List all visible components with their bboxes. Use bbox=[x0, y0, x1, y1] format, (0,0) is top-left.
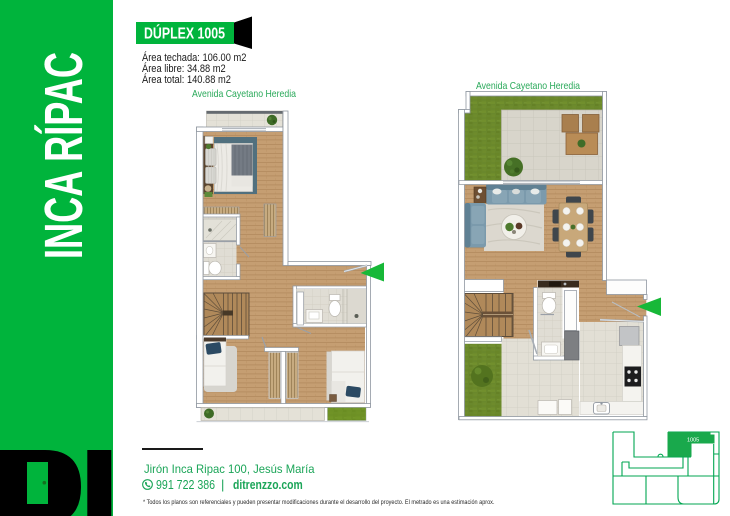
svg-text:DÚPLEX 1005: DÚPLEX 1005 bbox=[144, 24, 225, 43]
svg-text:INCA RÍPAC: INCA RÍPAC bbox=[34, 52, 94, 259]
svg-text:1005: 1005 bbox=[687, 438, 699, 444]
